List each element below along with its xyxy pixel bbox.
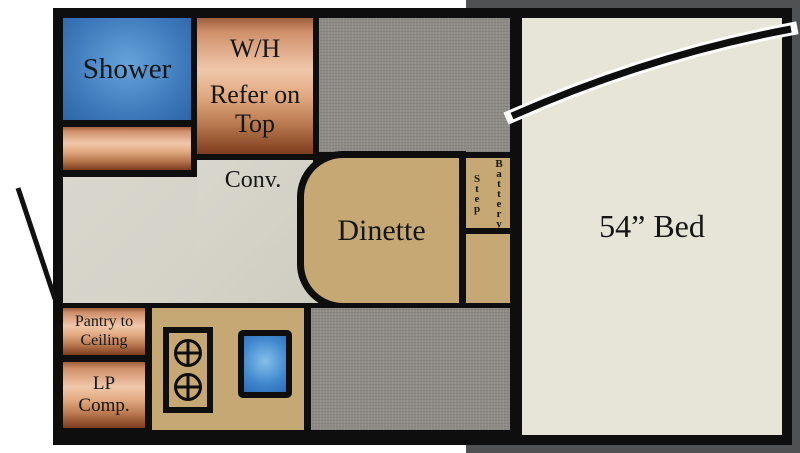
water-heater-label: W/H bbox=[230, 34, 281, 63]
refer-label: Refer on Top bbox=[210, 80, 300, 138]
storage-compartment bbox=[466, 234, 510, 303]
step-battery-compartment: Step Battery bbox=[466, 158, 510, 228]
stove-burner-icon bbox=[174, 339, 202, 367]
dinette-label: Dinette bbox=[337, 214, 425, 248]
shower-cabinet bbox=[63, 127, 191, 170]
pantry-label: Pantry to Ceiling bbox=[75, 313, 133, 350]
conv-label: Conv. bbox=[225, 167, 281, 194]
storage-top bbox=[319, 18, 510, 152]
water-heater-refer-cabinet: W/H Refer on Top bbox=[197, 18, 313, 154]
stove bbox=[163, 327, 213, 413]
stove-burner-icon bbox=[174, 373, 202, 401]
storage-bottom bbox=[311, 308, 510, 430]
battery-label: Battery bbox=[493, 158, 505, 228]
lp-compartment: LP Comp. bbox=[63, 362, 145, 428]
camper-floorplan: Shower W/H Refer on Top Conv. Dinette St… bbox=[53, 8, 792, 445]
bed-label: 54” Bed bbox=[599, 208, 705, 245]
shower-label: Shower bbox=[83, 53, 172, 86]
door-swing-line bbox=[18, 188, 55, 299]
sink-basin bbox=[238, 330, 292, 398]
conv-area: Conv. bbox=[213, 166, 293, 194]
dinette-table: Dinette bbox=[297, 151, 466, 310]
lp-label: LP Comp. bbox=[78, 373, 129, 417]
shower-room: Shower bbox=[63, 18, 191, 120]
floorplan-canvas: Shower W/H Refer on Top Conv. Dinette St… bbox=[0, 0, 800, 453]
step-label: Step bbox=[471, 173, 483, 213]
bed-area: 54” Bed bbox=[522, 18, 782, 435]
pantry-cabinet: Pantry to Ceiling bbox=[63, 308, 145, 355]
